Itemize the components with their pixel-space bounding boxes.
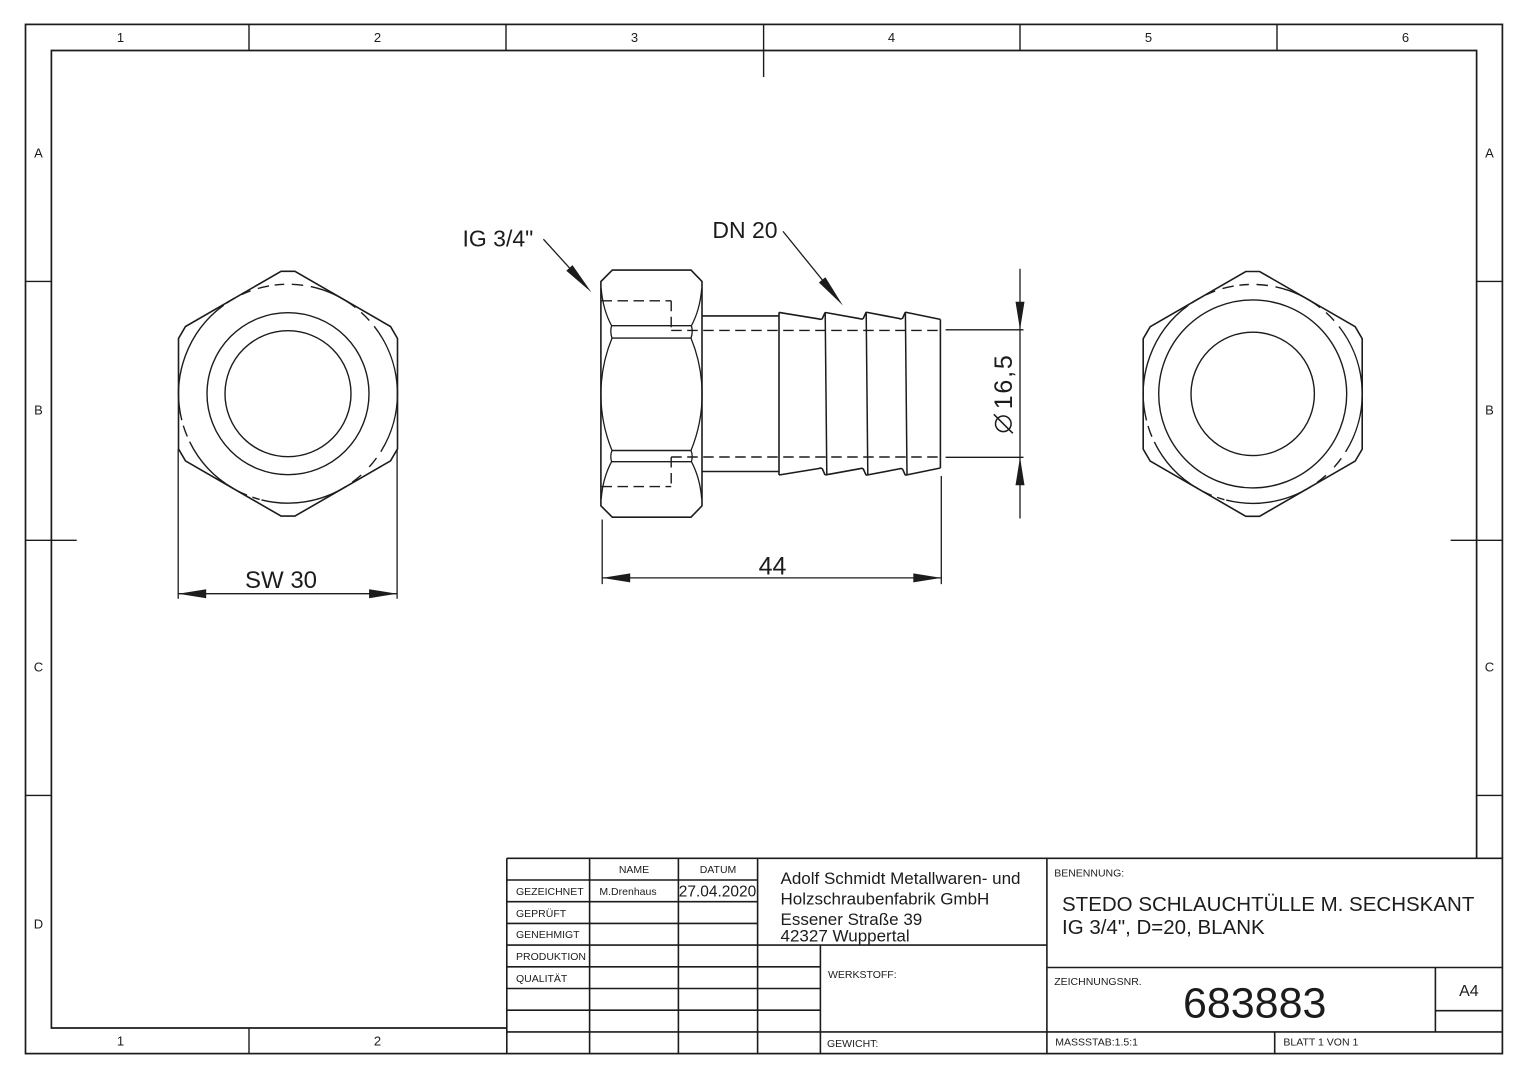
- svg-text:BLATT 1 VON 1: BLATT 1 VON 1: [1283, 1037, 1358, 1049]
- svg-text:5: 5: [1145, 30, 1152, 45]
- svg-text:DN 20: DN 20: [712, 217, 777, 243]
- svg-text:GEZEICHNET: GEZEICHNET: [516, 886, 584, 898]
- svg-text:A: A: [1485, 145, 1494, 160]
- svg-text:IG 3/4": IG 3/4": [463, 226, 534, 252]
- svg-text:ZEICHNUNGSNR.: ZEICHNUNGSNR.: [1054, 976, 1142, 988]
- svg-text:BENENNUNG:: BENENNUNG:: [1054, 868, 1124, 880]
- svg-text:Adolf Schmidt Metallwaren- und: Adolf Schmidt Metallwaren- und: [781, 869, 1021, 888]
- svg-text:27.04.2020: 27.04.2020: [679, 884, 757, 901]
- svg-text:GEPRÜFT: GEPRÜFT: [516, 908, 567, 920]
- svg-text:2: 2: [374, 1034, 381, 1049]
- svg-text:GEWICHT:: GEWICHT:: [827, 1038, 878, 1050]
- svg-text:PRODUKTION: PRODUKTION: [516, 951, 586, 963]
- svg-text:C: C: [1485, 659, 1494, 674]
- svg-text:6: 6: [1402, 30, 1409, 45]
- svg-text:1: 1: [117, 1034, 124, 1049]
- svg-text:44: 44: [759, 553, 787, 581]
- svg-text:Holzschraubenfabrik GmbH: Holzschraubenfabrik GmbH: [781, 890, 990, 909]
- svg-text:DATUM: DATUM: [700, 864, 737, 876]
- svg-text:SW 30: SW 30: [245, 567, 317, 594]
- svg-text:GENEHMIGT: GENEHMIGT: [516, 929, 580, 941]
- svg-text:16,5: 16,5: [990, 353, 1018, 409]
- svg-text:683883: 683883: [1183, 980, 1327, 1028]
- svg-text:B: B: [1485, 402, 1494, 417]
- svg-text:C: C: [34, 659, 43, 674]
- svg-text:M.Drenhaus: M.Drenhaus: [599, 886, 656, 898]
- svg-text:42327 Wuppertal: 42327 Wuppertal: [781, 927, 910, 946]
- svg-text:QUALITÄT: QUALITÄT: [516, 973, 568, 985]
- svg-text:2: 2: [374, 30, 381, 45]
- svg-text:B: B: [34, 402, 43, 417]
- svg-text:4: 4: [888, 30, 895, 45]
- svg-text:3: 3: [631, 30, 638, 45]
- svg-text:1: 1: [117, 30, 124, 45]
- svg-text:WERKSTOFF:: WERKSTOFF:: [828, 969, 897, 981]
- svg-text:STEDO SCHLAUCHTÜLLE M. SECHSKA: STEDO SCHLAUCHTÜLLE M. SECHSKANT: [1062, 893, 1475, 916]
- svg-text:IG 3/4", D=20, BLANK: IG 3/4", D=20, BLANK: [1062, 916, 1265, 939]
- svg-text:MASSSTAB:1.5:1: MASSSTAB:1.5:1: [1055, 1037, 1138, 1049]
- svg-text:NAME: NAME: [619, 864, 649, 876]
- svg-text:A: A: [34, 145, 43, 160]
- svg-text:A4: A4: [1459, 983, 1479, 1000]
- svg-text:D: D: [34, 916, 43, 931]
